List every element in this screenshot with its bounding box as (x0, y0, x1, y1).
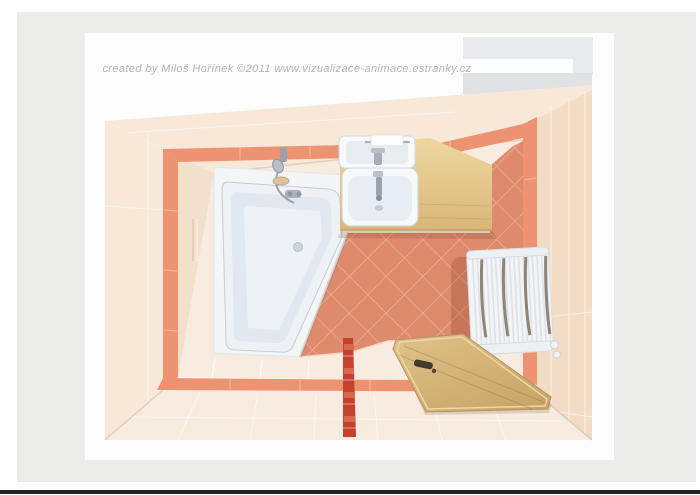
mirror-reflection (339, 135, 415, 168)
washbasin (342, 168, 418, 226)
left-wall-stripe (163, 149, 178, 389)
soap-dish (273, 177, 289, 185)
window-bottom-border (0, 490, 700, 494)
washbasin-drain (375, 205, 383, 211)
render-canvas: created by Miloš Hořínek ©2011 www.vizua… (85, 33, 614, 460)
towel-radiator (466, 247, 560, 363)
workspace-background: created by Miloš Hořínek ©2011 www.vizua… (17, 12, 696, 482)
watermark-text: created by Miloš Hořínek ©2011 www.vizua… (102, 63, 471, 75)
radiator-valve (553, 351, 560, 358)
radiator-valve (550, 341, 558, 349)
bathtub-drain (294, 243, 303, 252)
bathroom-render: created by Miloš Hořínek ©2011 www.vizua… (85, 33, 614, 460)
page-background: created by Miloš Hořínek ©2011 www.vizua… (0, 0, 700, 495)
